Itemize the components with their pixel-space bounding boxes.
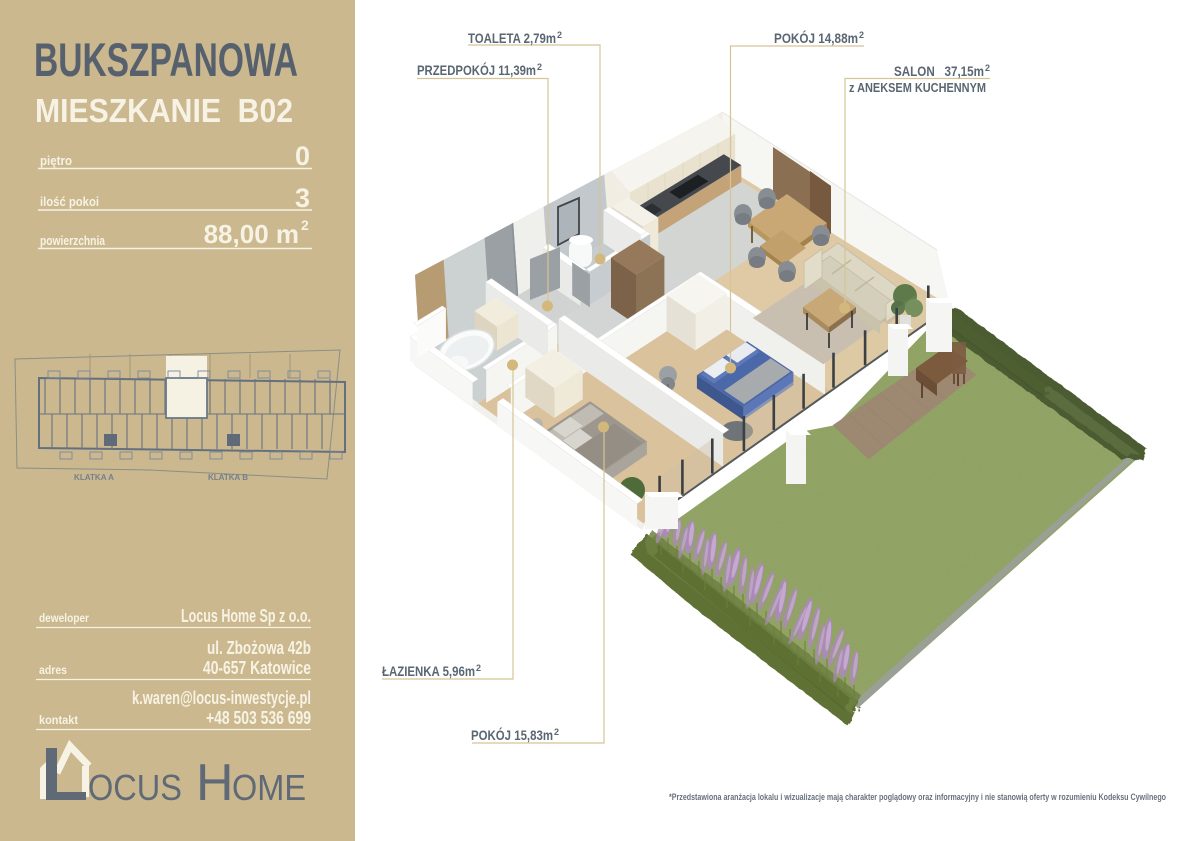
svg-text:adres: adres bbox=[39, 663, 67, 677]
svg-text:*Przedstawiona aranżacja lokal: *Przedstawiona aranżacja lokalu i wizual… bbox=[669, 792, 1166, 802]
svg-text:+48 503 536 699: +48 503 536 699 bbox=[206, 708, 311, 728]
svg-text:2: 2 bbox=[554, 727, 559, 737]
svg-text:kontakt: kontakt bbox=[39, 713, 78, 727]
svg-text:2: 2 bbox=[537, 62, 542, 72]
svg-text:3: 3 bbox=[295, 183, 310, 213]
svg-text:KLATKA A: KLATKA A bbox=[74, 473, 114, 482]
svg-text:piętro: piętro bbox=[40, 154, 72, 168]
svg-text:BUKSZPANOWA: BUKSZPANOWA bbox=[34, 33, 298, 86]
svg-text:OME: OME bbox=[232, 767, 306, 808]
svg-text:2: 2 bbox=[859, 30, 864, 40]
svg-text:0: 0 bbox=[295, 141, 310, 171]
svg-text:OCUS: OCUS bbox=[88, 767, 182, 808]
svg-text:2: 2 bbox=[301, 217, 309, 233]
svg-text:SALON 37,15m: SALON 37,15m bbox=[894, 63, 984, 79]
svg-text:POKÓJ 15,83m: POKÓJ 15,83m bbox=[471, 726, 553, 743]
svg-text:ŁAZIENKA 5,96m: ŁAZIENKA 5,96m bbox=[382, 663, 475, 679]
svg-text:ilość pokoi: ilość pokoi bbox=[40, 195, 99, 209]
svg-text:TOALETA 2,79m: TOALETA 2,79m bbox=[468, 30, 556, 46]
svg-text:KLATKA B: KLATKA B bbox=[208, 473, 248, 482]
svg-text:deweloper: deweloper bbox=[39, 611, 89, 625]
svg-text:POKÓJ 14,88m: POKÓJ 14,88m bbox=[774, 29, 858, 46]
svg-text:2: 2 bbox=[557, 30, 562, 40]
svg-text:MIESZKANIE B02: MIESZKANIE B02 bbox=[35, 92, 293, 129]
svg-text:ul. Zbożowa 42b: ul. Zbożowa 42b bbox=[207, 638, 311, 658]
svg-text:2: 2 bbox=[985, 63, 990, 73]
svg-text:z ANEKSEM KUCHENNYM: z ANEKSEM KUCHENNYM bbox=[849, 80, 986, 95]
svg-text:H: H bbox=[196, 754, 234, 812]
svg-text:2: 2 bbox=[476, 663, 481, 673]
svg-text:88,00 m: 88,00 m bbox=[204, 219, 299, 249]
svg-text:Locus Home Sp z o.o.: Locus Home Sp z o.o. bbox=[181, 606, 311, 626]
svg-text:powierzchnia: powierzchnia bbox=[40, 234, 106, 248]
svg-text:k.waren@locus-inwestycje.pl: k.waren@locus-inwestycje.pl bbox=[132, 688, 311, 708]
svg-text:40-657 Katowice: 40-657 Katowice bbox=[203, 658, 311, 678]
svg-text:PRZEDPOKÓJ 11,39m: PRZEDPOKÓJ 11,39m bbox=[417, 61, 536, 78]
